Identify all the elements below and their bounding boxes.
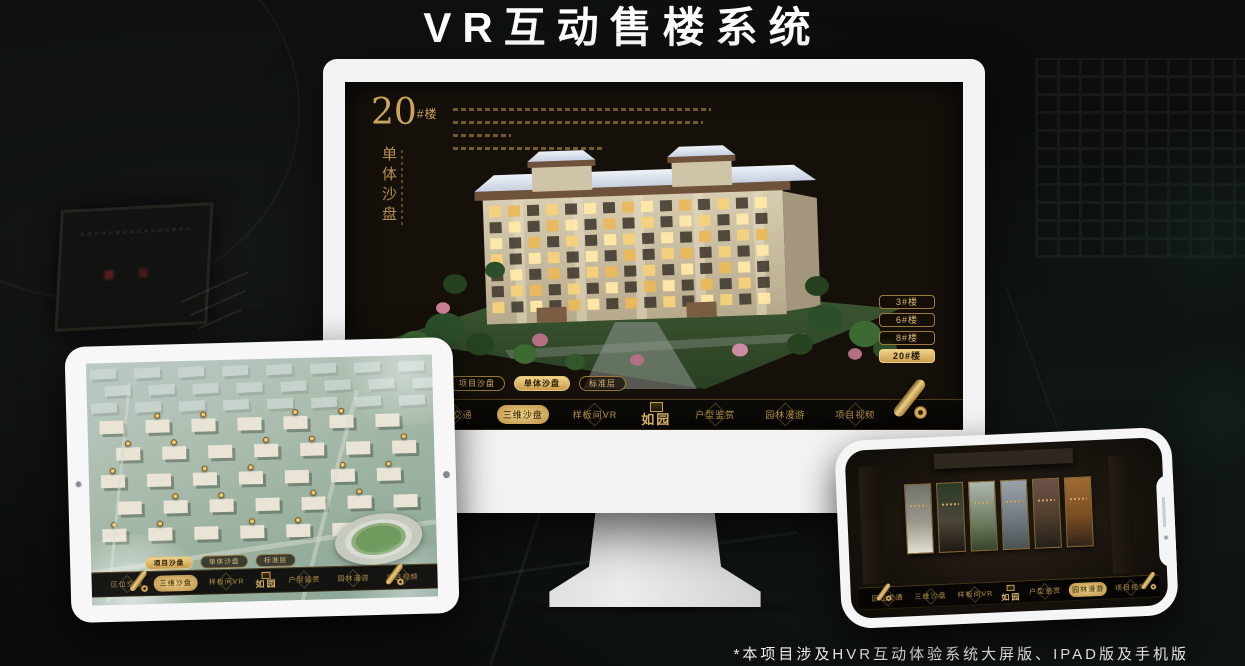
residence-block [254, 444, 278, 458]
window [680, 247, 692, 258]
city-block [280, 380, 307, 392]
window [606, 298, 618, 309]
residence-block [286, 524, 310, 538]
scene-panels [904, 476, 1094, 554]
building-marker[interactable] [157, 521, 163, 527]
scene-pillar [858, 466, 885, 584]
building-marker[interactable] [125, 440, 131, 446]
window [566, 235, 578, 246]
city-block [148, 384, 175, 396]
window [603, 218, 615, 229]
building-marker[interactable] [171, 439, 177, 445]
window [756, 229, 768, 240]
tree [436, 302, 450, 313]
window [699, 247, 711, 258]
scene-panel[interactable] [1032, 478, 1062, 549]
residence-block [118, 501, 142, 515]
window [717, 198, 729, 209]
nav-item[interactable]: 样板间VR [203, 573, 251, 590]
window [565, 219, 577, 230]
scroll-ornament-icon [876, 583, 892, 603]
window [549, 284, 561, 295]
window [756, 245, 768, 256]
scene-panel[interactable] [1000, 479, 1030, 550]
city-block [134, 367, 161, 379]
window [623, 249, 635, 260]
window [568, 283, 580, 294]
window [755, 213, 767, 224]
residence-block [377, 467, 401, 481]
scroll-ornament-icon [129, 569, 148, 593]
phone-notch [1156, 475, 1177, 568]
window [681, 263, 693, 274]
tablet-device: 项目沙盘单体沙盘标准层 区位交通三维沙盘样板间VR 如园 户型鉴赏园林漫游项目视… [64, 337, 459, 623]
window [737, 229, 749, 240]
window [585, 235, 597, 246]
residence-block [208, 445, 232, 459]
seal-icon [262, 571, 271, 578]
window [605, 266, 617, 277]
window [660, 216, 672, 227]
nav-item[interactable]: 园林漫游 [759, 405, 811, 424]
tree [513, 344, 537, 364]
window [701, 279, 713, 290]
tablet-home-button[interactable] [443, 471, 450, 478]
residence-block [393, 494, 417, 508]
building-number: 20 [371, 92, 417, 133]
window [700, 263, 712, 274]
window [489, 222, 501, 233]
window [623, 233, 635, 244]
building-marker[interactable] [200, 411, 206, 417]
window [567, 251, 579, 262]
window [511, 301, 523, 312]
bg-streak [190, 290, 246, 316]
phone-screen: 区位交通三维沙盘样板间VR 如园 户型鉴赏园林漫游项目视频 [844, 437, 1168, 619]
window [511, 285, 523, 296]
nav-item[interactable]: 三维沙盘 [911, 588, 950, 604]
bg-city-grid [1035, 58, 1245, 258]
building-marker[interactable] [202, 465, 208, 471]
building-marker[interactable] [386, 461, 392, 467]
sub-tab[interactable]: 标准层 [579, 376, 626, 391]
window [490, 238, 502, 249]
residence-block [346, 441, 370, 455]
window [508, 205, 520, 216]
window [660, 200, 672, 211]
building-marker[interactable] [309, 436, 315, 442]
window [546, 204, 558, 215]
bg-streak [198, 308, 243, 329]
window [736, 197, 748, 208]
window [603, 202, 615, 213]
residence-block [240, 525, 264, 539]
window [604, 234, 616, 245]
window [606, 282, 618, 293]
bg-foliage [1100, 120, 1245, 340]
sub-tab[interactable]: 单体沙盘 [514, 376, 570, 391]
window [565, 203, 577, 214]
window [717, 214, 729, 225]
phone-navbar: 区位交通三维沙盘样板间VR 如园 户型鉴赏园林漫游项目视频 [858, 574, 1160, 610]
bg-plaque [54, 202, 213, 332]
window [644, 281, 656, 292]
faux-text-line [453, 134, 511, 137]
window [641, 217, 653, 228]
residence-block [145, 419, 169, 433]
residence-block [239, 471, 263, 485]
window [643, 265, 655, 276]
building-marker[interactable] [356, 488, 362, 494]
floor-button[interactable]: 6#楼 [879, 313, 935, 327]
window [680, 231, 692, 242]
tree [466, 333, 494, 356]
building-marker[interactable] [292, 409, 298, 415]
scene-panel[interactable] [1064, 476, 1094, 547]
residence-block [162, 446, 186, 460]
window [584, 203, 596, 214]
window [758, 277, 770, 288]
window [584, 219, 596, 230]
poster-title: VR互动售楼系统 [0, 0, 1245, 56]
window [529, 253, 541, 264]
nav-item[interactable]: 项目视频 [829, 405, 881, 424]
building-marker[interactable] [248, 464, 254, 470]
faux-text-line [453, 108, 711, 111]
residence-block [237, 417, 261, 431]
tree [443, 274, 467, 294]
building-marker[interactable] [218, 492, 224, 498]
tree [805, 276, 829, 296]
floor-button[interactable]: 8#楼 [879, 331, 935, 345]
bg-streak [181, 271, 249, 303]
building-marker[interactable] [310, 490, 316, 496]
residence-block [392, 440, 416, 454]
window [547, 236, 559, 247]
city-block [90, 368, 117, 380]
city-block [267, 398, 294, 410]
window [719, 262, 731, 273]
window [548, 252, 560, 263]
window [738, 261, 750, 272]
tree [807, 304, 843, 334]
window [682, 279, 694, 290]
floor-button[interactable]: 20#楼 [879, 349, 935, 363]
city-block [266, 364, 293, 376]
city-block [223, 399, 250, 411]
window [510, 253, 522, 264]
city-block [222, 365, 249, 377]
window [739, 277, 751, 288]
city-block [178, 366, 205, 378]
monitor-sub-tabs: 项目沙盘单体沙盘标准层 [449, 373, 635, 391]
nav-item[interactable]: 户型鉴赏 [282, 571, 326, 588]
city-block [135, 401, 162, 413]
window [757, 261, 769, 272]
window [492, 286, 504, 297]
window [510, 269, 522, 280]
scene-panel[interactable] [904, 483, 934, 554]
window [586, 251, 598, 262]
window [663, 280, 675, 291]
window [587, 299, 599, 310]
floor-button[interactable]: 3#楼 [879, 295, 935, 309]
residence-block [255, 498, 279, 512]
nav-item[interactable]: 户型鉴赏 [689, 405, 741, 424]
nav-item[interactable]: 样板间VR [954, 586, 996, 602]
window [720, 278, 732, 289]
building-number-suffix: #楼 [417, 107, 438, 121]
window [568, 299, 580, 310]
nav-item[interactable]: 三维沙盘 [154, 574, 198, 591]
floor-selector: 3#楼6#楼8#楼20#楼 [879, 295, 935, 363]
window [661, 248, 673, 259]
window [679, 215, 691, 226]
tablet-camera [75, 481, 82, 488]
window [509, 237, 521, 248]
residence-block [347, 495, 371, 509]
window [718, 246, 730, 257]
scroll-ornament-icon [385, 563, 404, 587]
building-marker[interactable] [172, 493, 178, 499]
city-block [179, 400, 206, 412]
scene-pillar [1108, 455, 1135, 573]
building-marker[interactable] [110, 468, 116, 474]
tree [565, 354, 585, 370]
window [679, 199, 691, 210]
building-marker[interactable] [340, 462, 346, 468]
window [755, 197, 767, 208]
window [758, 293, 770, 304]
residence-block [285, 470, 309, 484]
building-marker[interactable] [295, 517, 301, 523]
window [644, 297, 656, 308]
window [548, 268, 560, 279]
window [625, 281, 637, 292]
seal-icon [650, 402, 663, 412]
residence-block [301, 496, 325, 510]
window [622, 201, 634, 212]
residence-block [99, 421, 123, 435]
residence-block [194, 526, 218, 540]
tree [787, 333, 813, 354]
window [586, 267, 598, 278]
building-marker[interactable] [263, 437, 269, 443]
seal-icon [1007, 584, 1015, 590]
tablet-screen: 项目沙盘单体沙盘标准层 区位交通三维沙盘样板间VR 如园 户型鉴赏园林漫游项目视… [86, 355, 438, 606]
residence-block [147, 473, 171, 487]
window [489, 206, 501, 217]
window [624, 265, 636, 276]
building-marker[interactable] [338, 408, 344, 414]
sub-tab[interactable]: 标准层 [255, 553, 295, 567]
scene-gate-beam [933, 448, 1073, 469]
window [642, 233, 654, 244]
window [508, 221, 520, 232]
tree [532, 333, 548, 346]
phone-camera [1163, 535, 1168, 540]
tree [485, 262, 505, 278]
window [739, 293, 751, 304]
building-3d-render[interactable] [385, 144, 905, 394]
building-marker[interactable] [401, 433, 407, 439]
window [492, 302, 504, 313]
residence-block [164, 500, 188, 514]
project-logo: 如园 [641, 402, 671, 427]
city-block [192, 383, 219, 395]
window [641, 201, 653, 212]
window [587, 283, 599, 294]
window [546, 220, 558, 231]
window [661, 232, 673, 243]
poster-footnote: *本项目涉及HVR互动体验系统大屏版、IPAD版及手机版 [734, 643, 1189, 664]
nav-item[interactable]: 户型鉴赏 [1026, 583, 1065, 599]
window [527, 221, 539, 232]
tree [848, 348, 862, 359]
nav-item[interactable]: 三维沙盘 [497, 405, 549, 424]
scroll-ornament-icon [1140, 571, 1156, 591]
scene-panel[interactable] [968, 480, 998, 551]
window [663, 296, 675, 307]
phone-device: 区位交通三维沙盘样板间VR 如园 户型鉴赏园林漫游项目视频 [834, 427, 1179, 630]
sub-tab[interactable]: 项目沙盘 [449, 376, 505, 391]
nav-item[interactable]: 园林漫游 [1069, 581, 1108, 597]
city-block [91, 402, 118, 414]
residence-block [300, 442, 324, 456]
window [698, 199, 710, 210]
window [662, 264, 674, 275]
window [718, 230, 730, 241]
window [720, 294, 732, 305]
phone-speaker [1162, 497, 1166, 527]
window [527, 205, 539, 216]
nav-item[interactable]: 样板间VR [567, 405, 624, 424]
project-logo: 如园 [255, 571, 277, 590]
residence-block [191, 418, 215, 432]
scene-panel[interactable] [936, 482, 966, 553]
residence-block [209, 499, 233, 513]
building-marker[interactable] [249, 518, 255, 524]
residence-block [193, 472, 217, 486]
residence-block [283, 416, 307, 430]
building-marker[interactable] [154, 413, 160, 419]
city-block [236, 382, 263, 394]
window [529, 269, 541, 280]
window [605, 250, 617, 261]
sub-tab[interactable]: 项目沙盘 [145, 556, 193, 570]
window [625, 297, 637, 308]
sub-tab[interactable]: 单体沙盘 [200, 555, 248, 569]
window [737, 245, 749, 256]
poster-stage: VR互动售楼系统 *本项目涉及HVR互动体验系统大屏版、IPAD版及手机版 20… [0, 0, 1245, 666]
city-block [311, 397, 338, 409]
window [622, 217, 634, 228]
building-headline: 20#楼 [371, 96, 438, 130]
window [736, 213, 748, 224]
window [528, 237, 540, 248]
residential-building [473, 144, 821, 325]
scroll-ornament-icon [893, 378, 927, 420]
nav-item[interactable]: 园林漫游 [331, 570, 375, 587]
window [530, 285, 542, 296]
window [698, 215, 710, 226]
window [567, 267, 579, 278]
window [699, 231, 711, 242]
tree [732, 343, 748, 356]
window [642, 249, 654, 260]
project-logo: 如园 [1001, 584, 1022, 601]
tree [630, 354, 644, 365]
faux-text-line [453, 121, 703, 124]
